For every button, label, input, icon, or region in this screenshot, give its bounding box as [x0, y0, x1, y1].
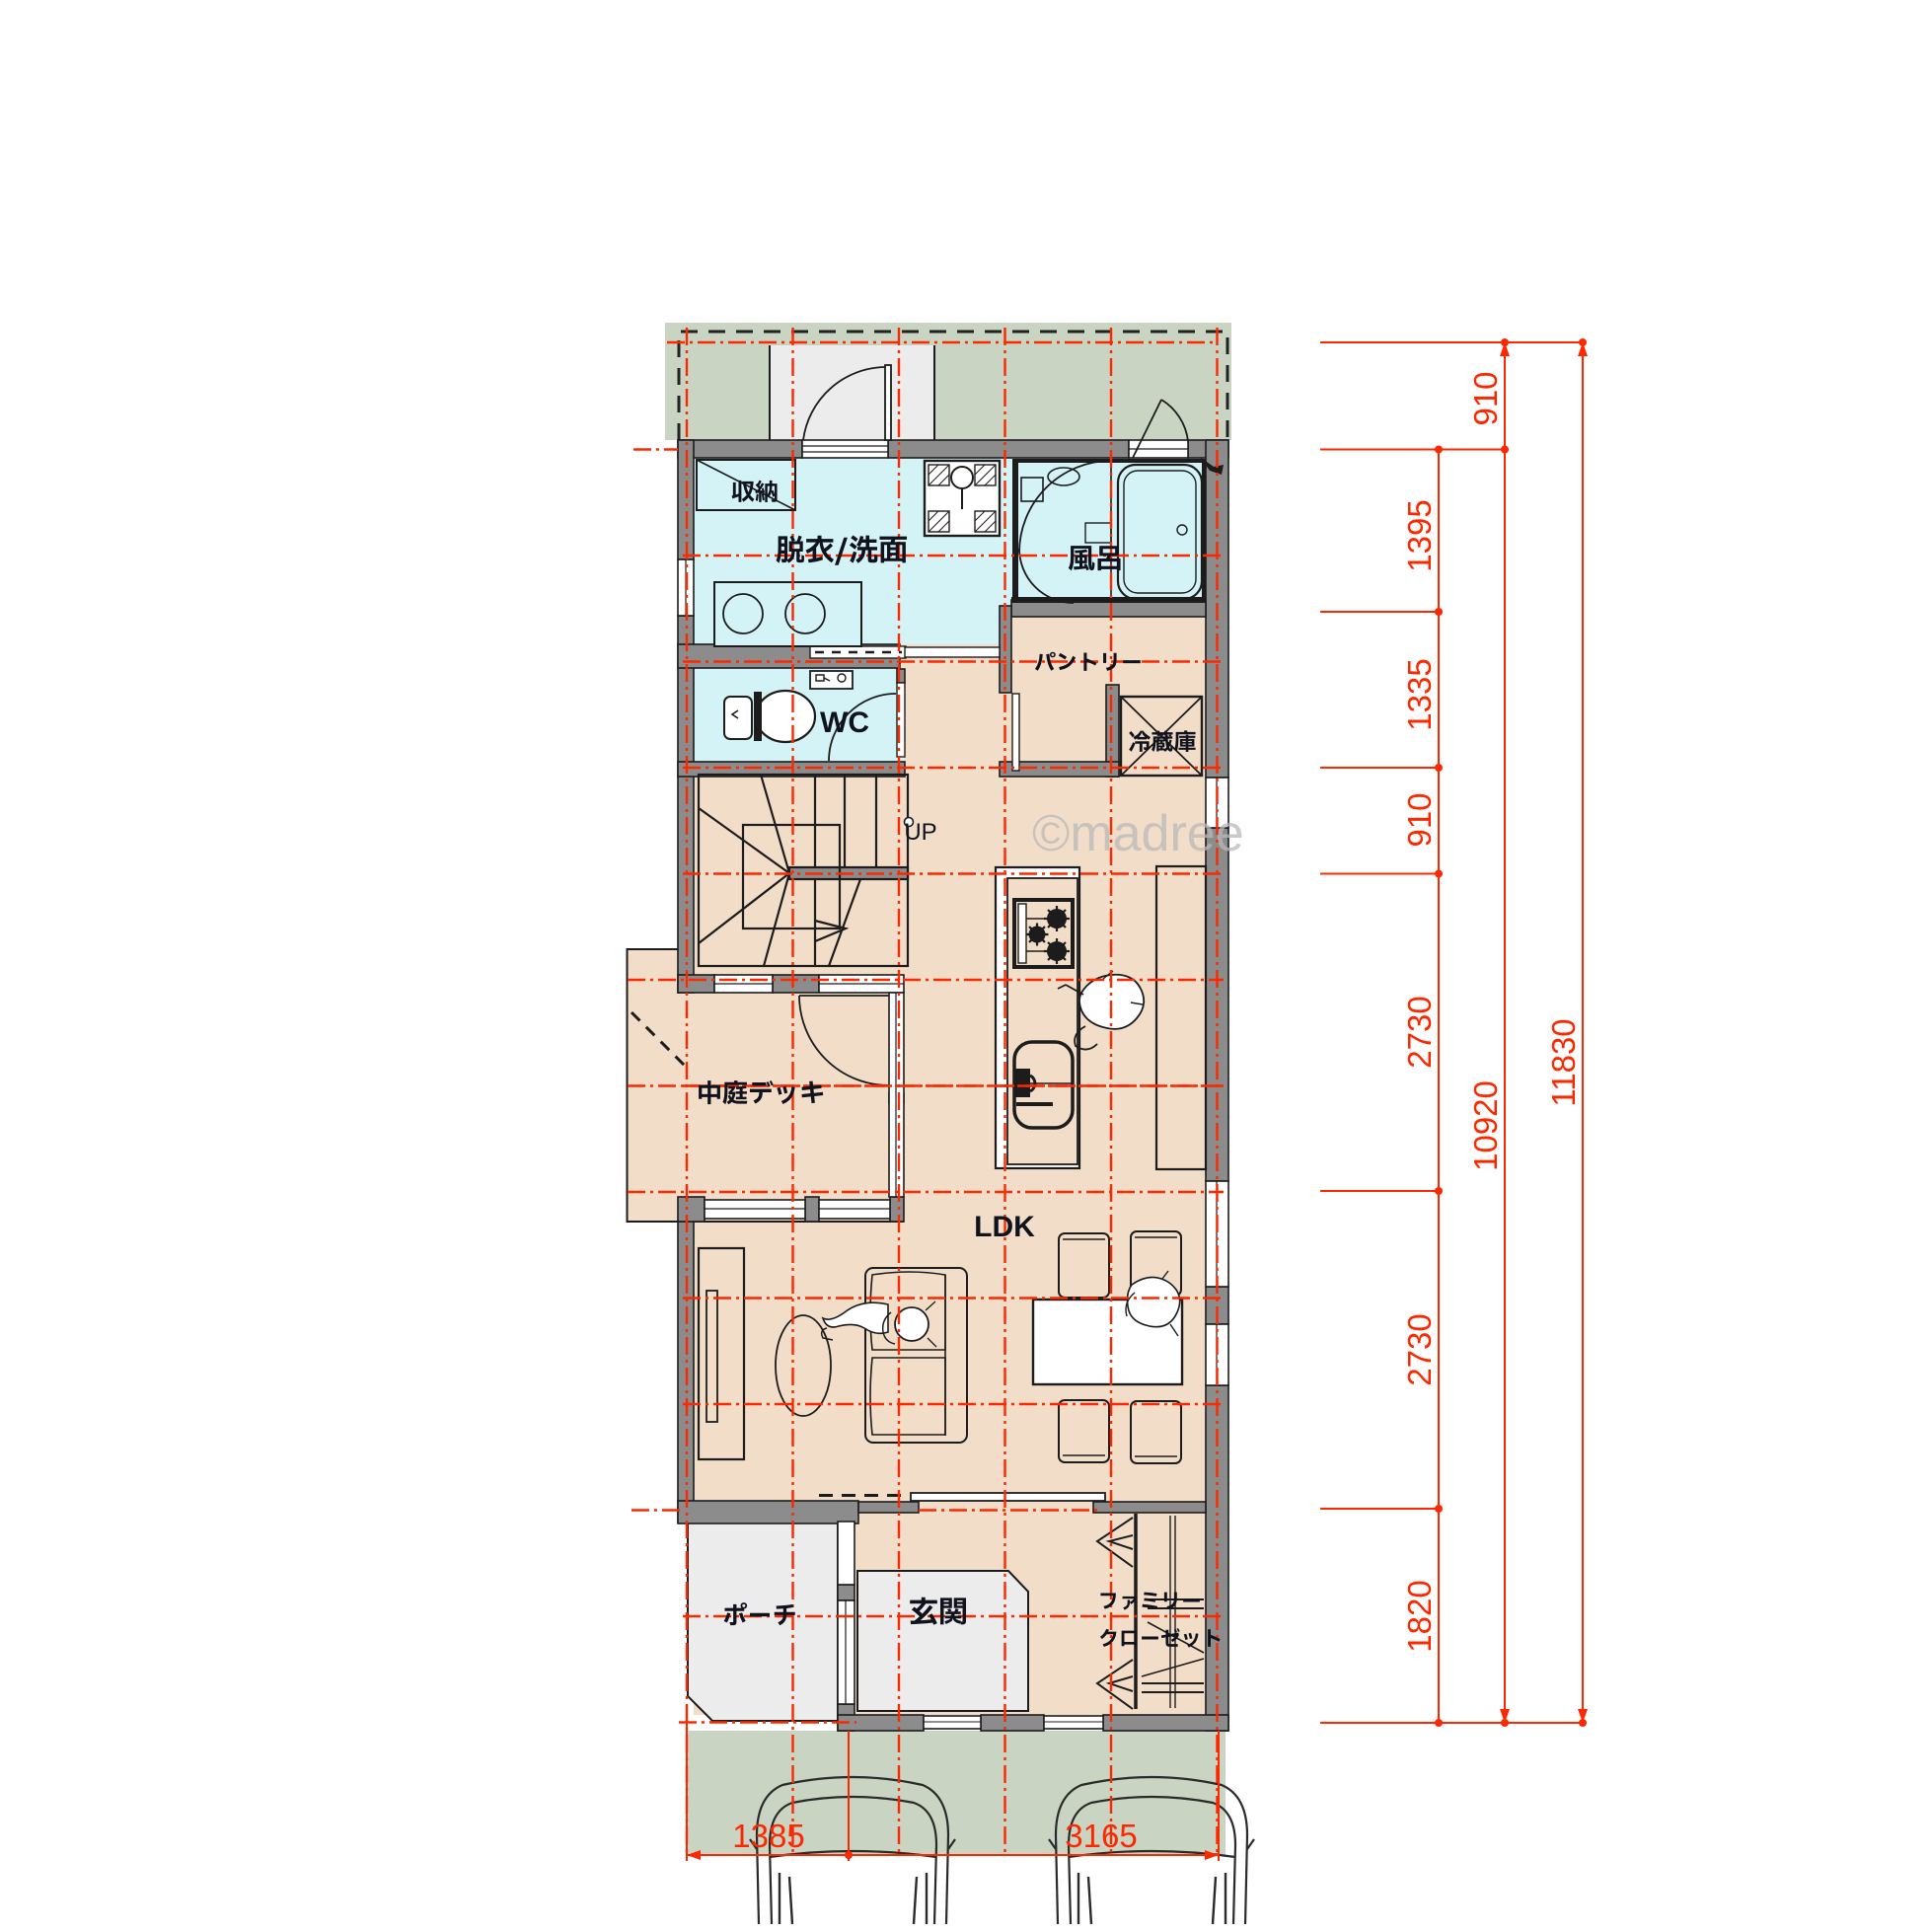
svg-text:910: 910	[1401, 792, 1438, 847]
svg-text:2730: 2730	[1401, 996, 1438, 1068]
svg-text:910: 910	[1467, 371, 1504, 425]
svg-text:3165: 3165	[1065, 1818, 1137, 1854]
svg-text:10920: 10920	[1467, 1080, 1504, 1171]
svg-text:1820: 1820	[1401, 1580, 1438, 1652]
svg-text:2730: 2730	[1401, 1313, 1438, 1385]
svg-text:1335: 1335	[1401, 658, 1438, 730]
svg-text:11830: 11830	[1545, 1018, 1582, 1106]
svg-text:1395: 1395	[1401, 499, 1438, 571]
svg-text:UP: UP	[904, 819, 936, 846]
svg-text:LDK: LDK	[974, 1211, 1035, 1243]
svg-text:©madree: ©madree	[1032, 805, 1244, 862]
svg-text:WC: WC	[820, 706, 869, 739]
